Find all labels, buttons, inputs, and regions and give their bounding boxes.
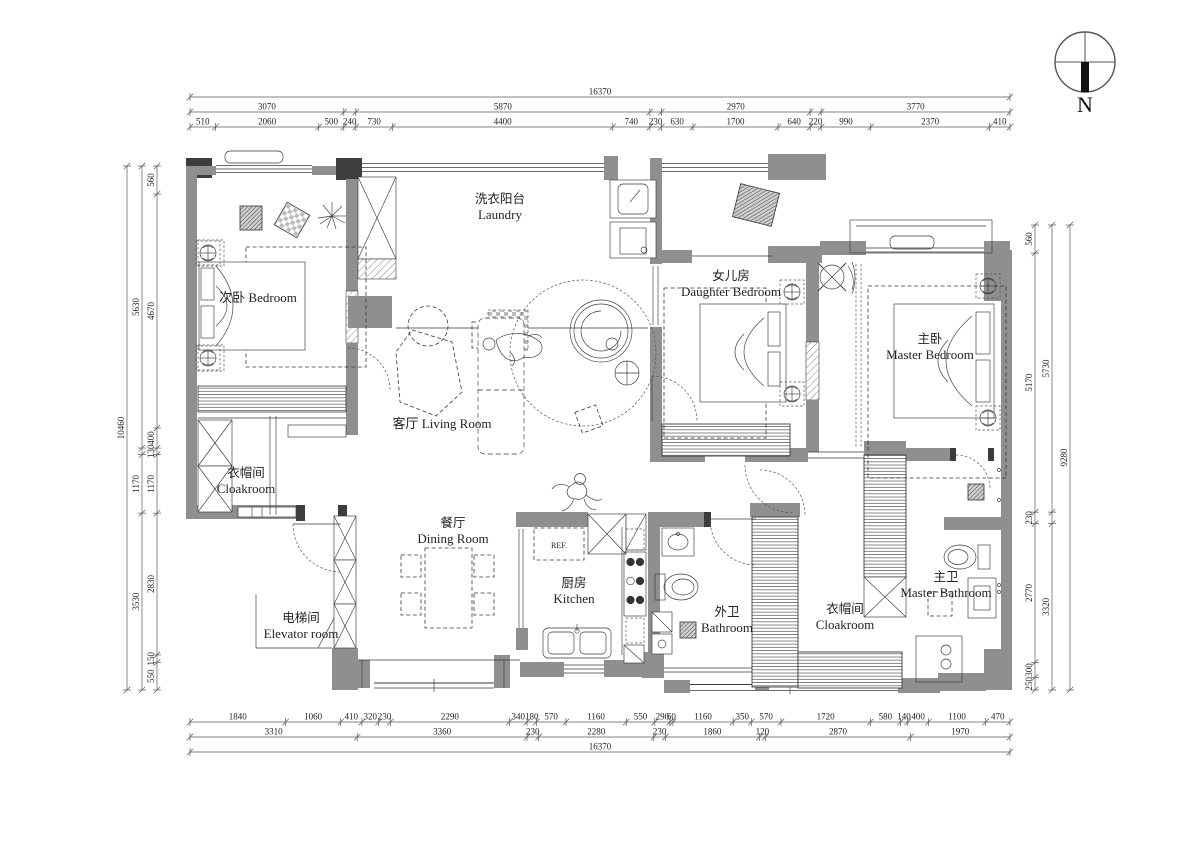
dim-label: 570 <box>759 712 773 722</box>
dim-label: 230 <box>653 727 667 737</box>
north-label: N <box>1077 92 1093 117</box>
dim-label: 410 <box>344 712 358 722</box>
room-label-daughter-bedroom: Daughter Bedroom <box>681 284 781 299</box>
room-label-cloakroom-left: Cloakroom <box>217 481 276 496</box>
room-label-kitchen: Kitchen <box>553 591 595 606</box>
room-label-cloakroom-right: Cloakroom <box>816 617 875 632</box>
dim-label: 3530 <box>131 592 141 611</box>
dim-label: 550 <box>146 669 156 683</box>
room-label-dining-room: Dining Room <box>417 531 488 546</box>
dim-label: 1860 <box>703 727 722 737</box>
dim-label: 4670 <box>146 302 156 321</box>
room-label-cloakroom-left: 衣帽间 <box>227 465 265 480</box>
dim-label: 1170 <box>146 475 156 493</box>
dim-label: 3360 <box>433 727 452 737</box>
dim-label: 10460 <box>116 416 126 439</box>
dim-label: 640 <box>787 117 801 127</box>
dim-label: 1160 <box>694 712 712 722</box>
dim-label: 2970 <box>727 102 746 112</box>
dim-label: 580 <box>879 712 893 722</box>
room-label-laundry: Laundry <box>478 207 523 222</box>
dim-label: 1970 <box>951 727 970 737</box>
dimension-annotations: 1637030705870297037705102060500240730440… <box>116 87 1074 757</box>
dim-label: 220 <box>809 117 823 127</box>
room-label-bedroom-2: 次卧 Bedroom <box>219 290 297 305</box>
plant-icon <box>318 202 346 229</box>
dim-label: 2370 <box>921 117 940 127</box>
kitchen-sink-icon <box>543 624 611 658</box>
floor-plan-canvas: N 洗衣阳台Laundry次卧 Bedroom客厅 Living Room女儿房… <box>0 0 1200 848</box>
room-label-laundry: 洗衣阳台 <box>475 191 525 206</box>
room-label-dining-room: 餐厅 <box>440 515 465 530</box>
dim-label: 1170 <box>131 475 141 493</box>
dim-label: 120 <box>756 727 770 737</box>
dim-label: 16370 <box>589 742 612 752</box>
north-arrow: N <box>1055 32 1115 117</box>
dim-label: 1060 <box>304 712 323 722</box>
basin-icon <box>662 528 694 556</box>
dim-label: 5730 <box>1041 359 1051 378</box>
person-walking <box>552 474 602 512</box>
dim-label: 4400 <box>494 117 513 127</box>
dim-label: 250 <box>1024 676 1034 690</box>
dim-label: 130 <box>146 444 156 458</box>
dim-label: 1720 <box>817 712 836 722</box>
dim-label: 570 <box>544 712 558 722</box>
dim-label: 240 <box>343 117 357 127</box>
dim-label: 510 <box>196 117 210 127</box>
column-symbol <box>818 263 846 291</box>
dim-label: 730 <box>367 117 381 127</box>
room-label-elevator-room: 电梯间 <box>282 611 320 625</box>
chaise <box>478 318 524 454</box>
dim-label: 3310 <box>265 727 284 737</box>
stove-icon <box>627 558 644 604</box>
fridge-label: REF. <box>551 541 567 550</box>
dim-label: 3770 <box>907 102 926 112</box>
dim-label: 1840 <box>229 712 248 722</box>
dim-label: 320 <box>363 712 377 722</box>
bed-daughter <box>700 304 786 402</box>
dim-label: 630 <box>670 117 684 127</box>
room-label-master-bathroom: Master Bathroom <box>900 585 991 600</box>
room-label-bathroom: 外卫 <box>714 605 739 619</box>
dim-label: 230 <box>649 117 663 127</box>
bed-secondary <box>199 262 305 350</box>
room-label-bathroom: Bathroom <box>701 620 753 635</box>
dim-label: 2830 <box>146 575 156 594</box>
dim-label: 1700 <box>726 117 745 127</box>
dim-label: 2770 <box>1024 584 1034 603</box>
dim-label: 470 <box>991 712 1005 722</box>
dim-label: 400 <box>911 712 925 722</box>
toilet-icon <box>655 574 698 600</box>
dim-label: 3320 <box>1041 597 1051 616</box>
room-label-master-bedroom: 主卧 <box>917 332 942 346</box>
dim-label: 5170 <box>1024 373 1034 392</box>
room-label-elevator-room: Elevator room <box>264 626 339 641</box>
dim-label: 5630 <box>131 298 141 317</box>
dim-label: 9280 <box>1059 448 1069 467</box>
room-label-cloakroom-right: 衣帽间 <box>826 601 864 616</box>
dim-label: 2280 <box>587 727 606 737</box>
dim-label: 2290 <box>441 712 460 722</box>
dim-label: 560 <box>146 173 156 187</box>
dim-label: 560 <box>1024 232 1034 246</box>
room-label-kitchen: 厨房 <box>561 575 586 590</box>
dim-label: 180 <box>525 712 539 722</box>
dim-label: 2870 <box>829 727 848 737</box>
dim-label: 140 <box>897 712 911 722</box>
dim-label: 150 <box>146 651 156 665</box>
dim-label: 410 <box>993 117 1007 127</box>
room-label-living-room: 客厅 Living Room <box>393 416 492 431</box>
dim-label: 230 <box>1024 511 1034 525</box>
dim-label: 990 <box>839 117 853 127</box>
dim-label: 1100 <box>948 712 966 722</box>
dim-label: 3070 <box>258 102 277 112</box>
dim-label: 230 <box>526 727 540 737</box>
dim-label: 340 <box>511 712 525 722</box>
round-table <box>570 300 632 362</box>
room-label-master-bedroom: Master Bedroom <box>886 347 974 362</box>
dim-label: 350 <box>736 712 750 722</box>
dim-label: 2060 <box>258 117 277 127</box>
room-label-master-bathroom: 主卫 <box>933 570 958 584</box>
floor-drain-icon <box>680 622 696 638</box>
dim-label: 550 <box>634 712 648 722</box>
dim-label: 400 <box>146 431 156 445</box>
dim-label: 16370 <box>589 87 612 97</box>
dim-label: 500 <box>325 117 339 127</box>
dim-label: 60 <box>667 712 677 722</box>
dim-label: 1160 <box>587 712 605 722</box>
dim-label: 300 <box>1024 663 1034 677</box>
dim-label: 230 <box>378 712 392 722</box>
dim-label: 740 <box>625 117 639 127</box>
master-toilet-icon <box>944 545 990 569</box>
dim-label: 5870 <box>494 102 513 112</box>
room-label-daughter-bedroom: 女儿房 <box>712 268 750 283</box>
